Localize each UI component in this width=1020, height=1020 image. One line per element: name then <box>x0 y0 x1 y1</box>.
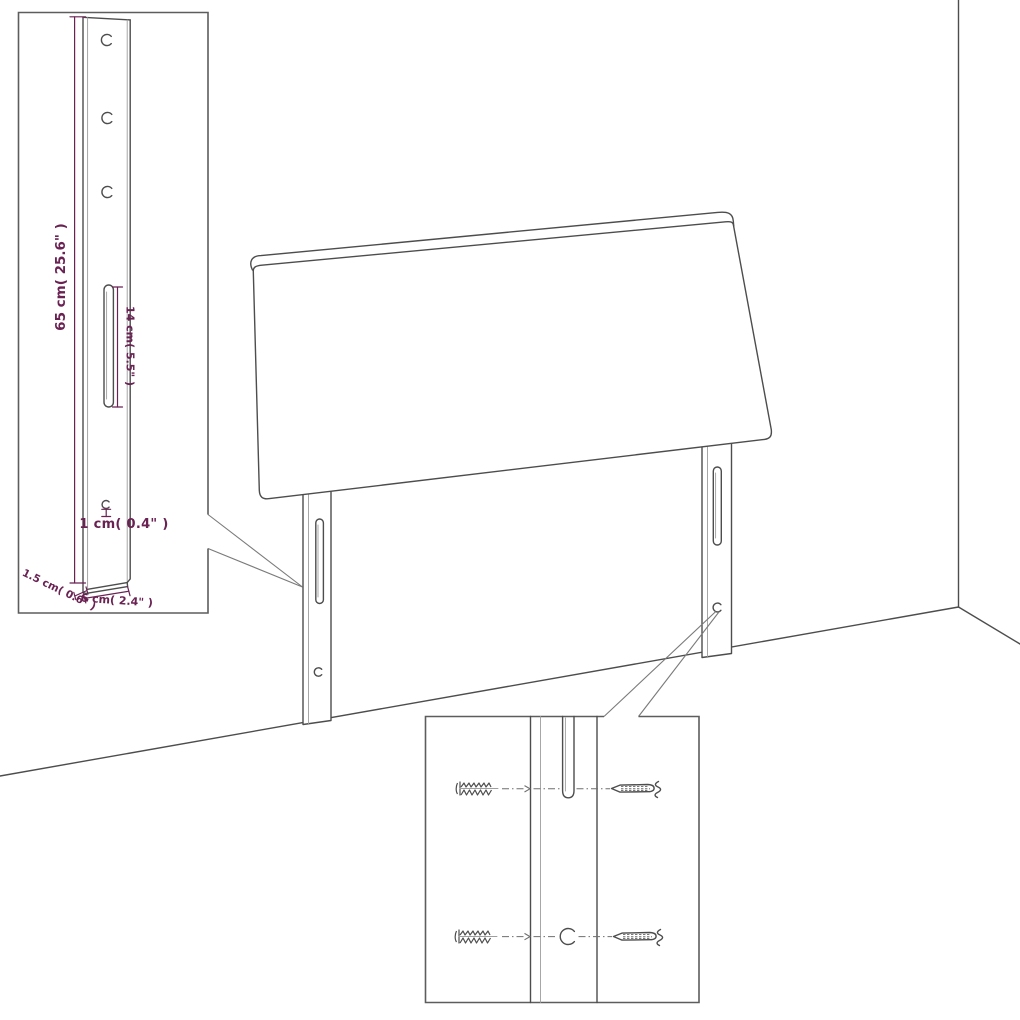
leg-thickness-label: 1.5 cm( 0.6" ) <box>20 567 98 613</box>
screw-icon-bottom <box>614 930 663 946</box>
hole-size-label: 1 cm( 0.4" ) <box>79 517 168 532</box>
dim-slot-length: 14 cm( 5.5" ) <box>113 287 137 407</box>
wall-anchor-icon-bottom <box>455 930 497 944</box>
left-leg <box>303 482 331 725</box>
inset-leg-drawing <box>83 17 130 593</box>
screw-icon-top <box>612 782 661 798</box>
wall-anchor-icon-top <box>456 782 498 796</box>
dim-leg-thickness: 1.5 cm( 0.6" ) <box>20 567 98 613</box>
right-leg <box>702 437 732 658</box>
floor-line-left <box>0 607 959 776</box>
screw-spring-squiggle <box>655 782 661 798</box>
inset-leg-small-hole <box>102 501 109 509</box>
dim-leg-height: 65 cm( 25.6" ) <box>53 17 86 583</box>
callout-wedge-left <box>208 515 303 588</box>
inset-strip-slot <box>563 717 574 798</box>
diagram-canvas: 65 cm( 25.6" ) 14 cm( 5.5" ) 1 cm( 0.4" … <box>0 0 1020 1020</box>
assembly-leader-top <box>502 786 610 792</box>
inset-leg-hole-3 <box>102 186 112 197</box>
dim-hole-size: 1 cm( 0.4" ) <box>79 509 168 532</box>
inset-leg-hole-1 <box>101 34 111 45</box>
leg-height-label: 65 cm( 25.6" ) <box>53 223 69 331</box>
screw-spring-squiggle <box>657 930 663 946</box>
floor-line-right <box>959 607 1020 644</box>
inset-leg-strip <box>531 717 598 1003</box>
inset-leg-hole-2 <box>102 112 112 123</box>
headboard-front-face <box>253 222 771 499</box>
right-leg-body <box>702 437 732 658</box>
headboard-panel <box>251 212 772 499</box>
detail-inset-hardware <box>426 717 700 1003</box>
slot-length-label: 14 cm( 5.5" ) <box>124 306 137 386</box>
assembly-leader-bottom <box>502 933 612 939</box>
inset-leg-slot <box>104 285 113 407</box>
detail-inset-leg: 65 cm( 25.6" ) 14 cm( 5.5" ) 1 cm( 0.4" … <box>19 13 209 614</box>
inset-strip-hole <box>560 929 574 945</box>
